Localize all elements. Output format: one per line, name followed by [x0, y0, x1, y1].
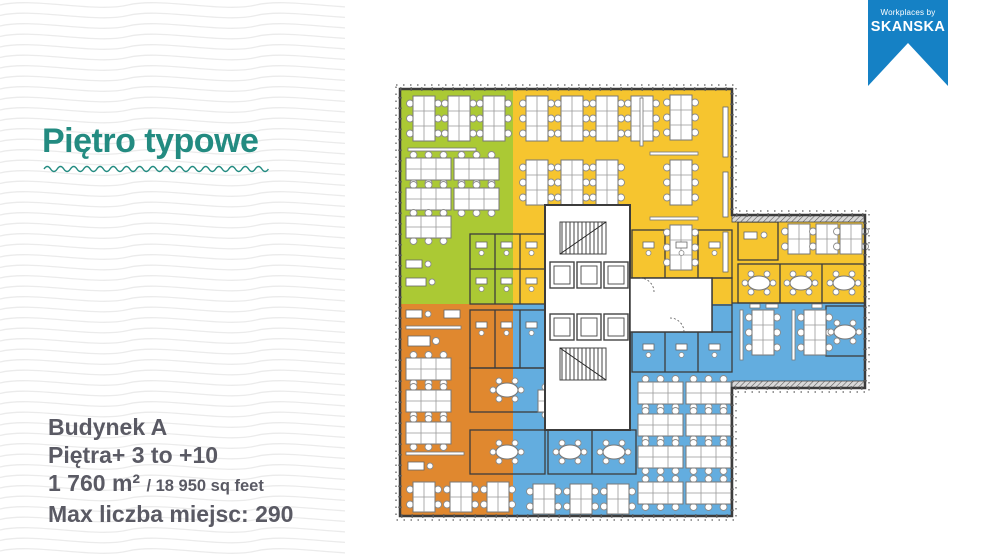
elevator-bank-lower: [550, 314, 628, 340]
elevator-lobby: [630, 278, 712, 332]
elevator-bank-upper: [550, 262, 628, 288]
spec-area-metric: 1 760 m²: [48, 470, 140, 496]
spec-area-imperial: / 18 950 sq feet: [146, 477, 263, 495]
page-title: Piętro typowe: [42, 122, 258, 161]
building-specs: Budynek A Piętra+ 3 to +10 1 760 m² / 18…: [48, 413, 293, 528]
spec-area: 1 760 m² / 18 950 sq feet: [48, 469, 293, 500]
typical-floor-plan: [388, 82, 888, 532]
spec-capacity: Max liczba miejsc: 290: [48, 500, 293, 528]
brand-ribbon: Workplaces by SKANSKA: [868, 0, 948, 86]
left-panel: Piętro typowe Budynek A Piętra+ 3 to +10…: [0, 0, 390, 555]
ribbon-tagline: Workplaces by: [868, 8, 948, 17]
ribbon-brand-logo: SKANSKA: [868, 19, 948, 35]
building-core: [545, 205, 630, 430]
floor-plan-svg: [388, 82, 888, 532]
spec-building: Budynek A: [48, 413, 293, 441]
title-underline-wave: [42, 163, 274, 175]
spec-floors: Piętra+ 3 to +10: [48, 441, 293, 469]
